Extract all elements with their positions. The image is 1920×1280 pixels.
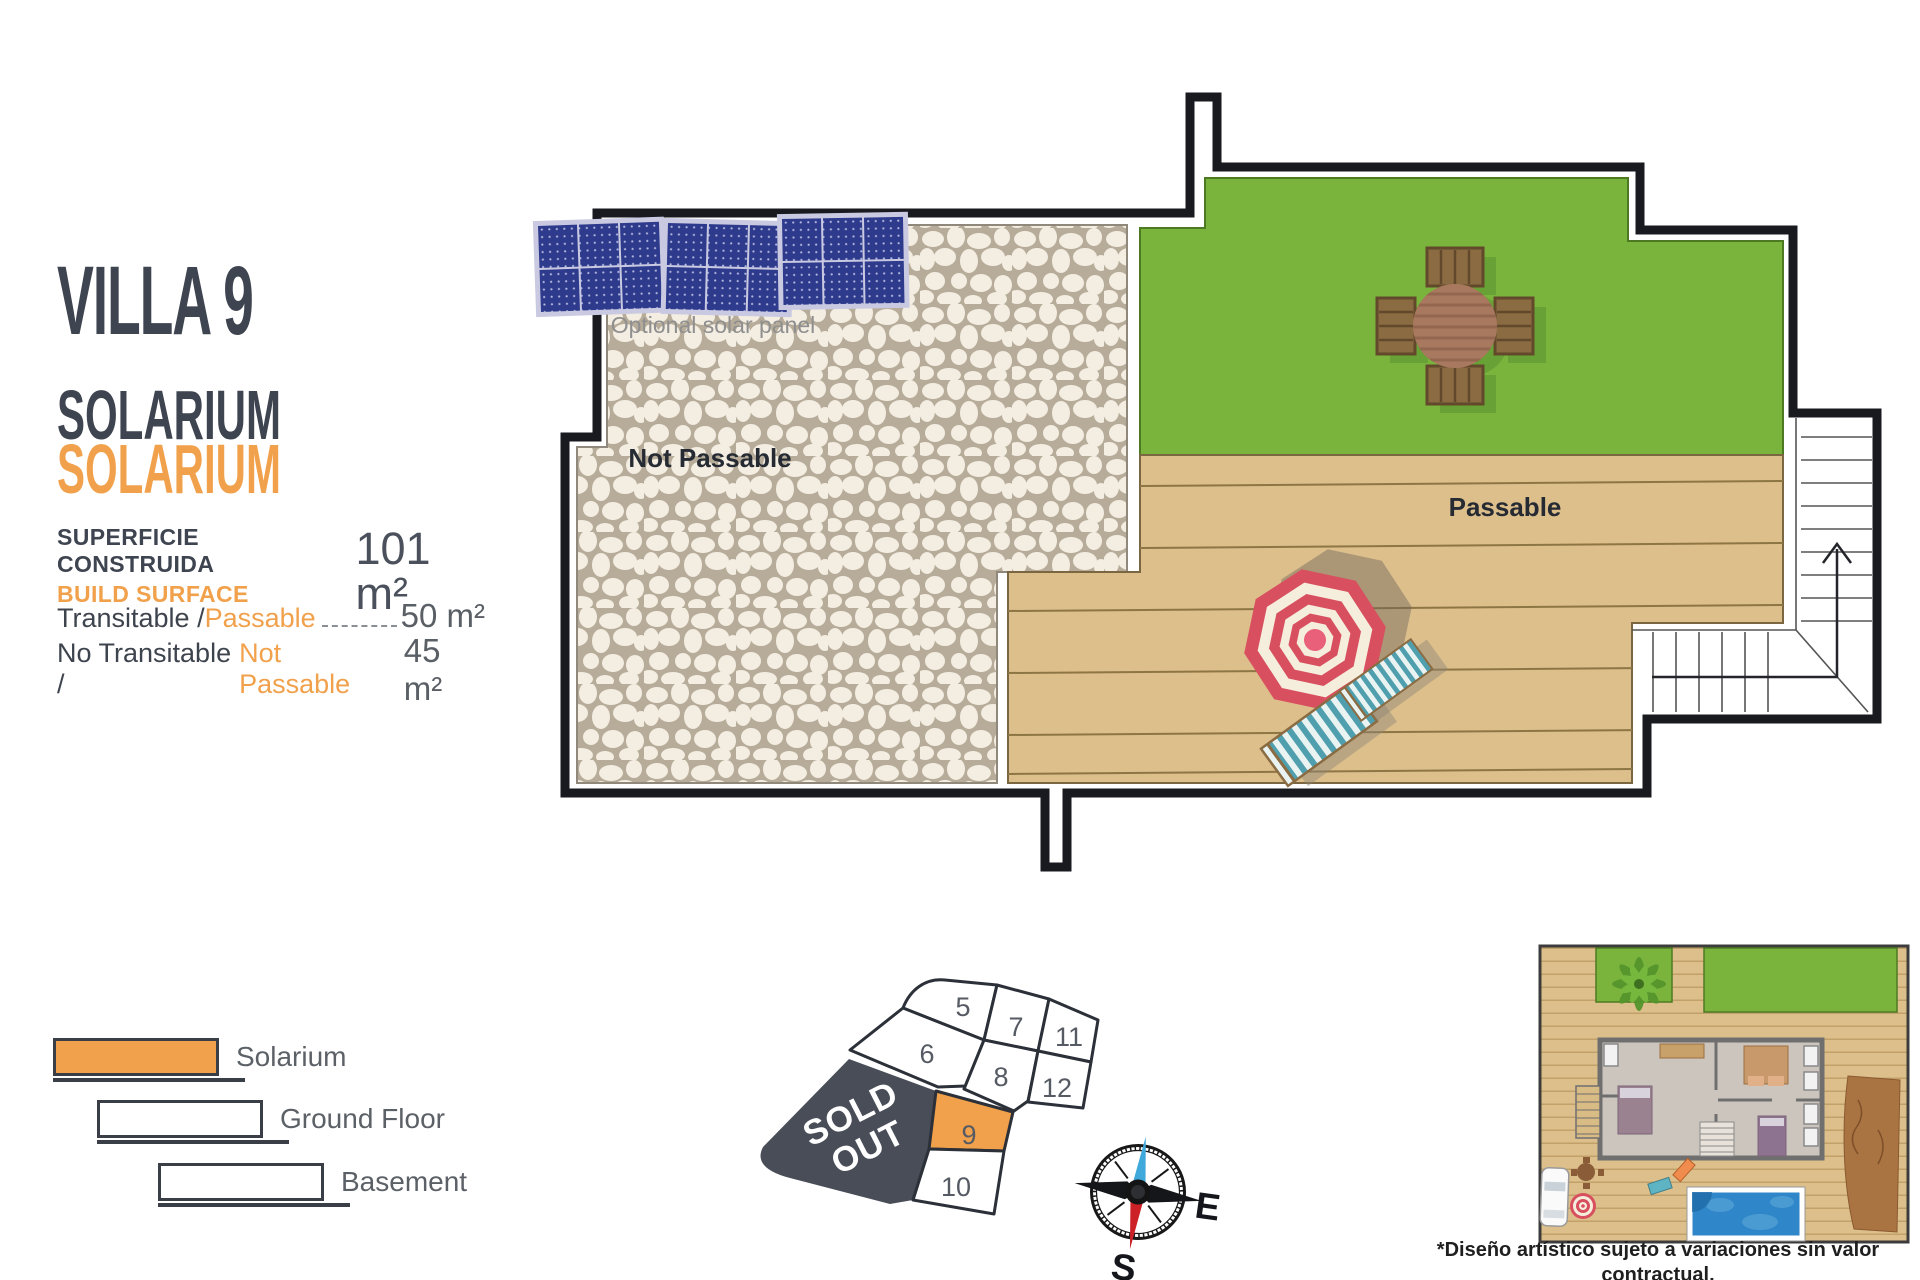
plot-label-8: 8 bbox=[993, 1062, 1008, 1092]
mini-bed bbox=[1744, 1046, 1788, 1086]
palm-tree bbox=[1612, 957, 1666, 1011]
mini-dirt-patch bbox=[1844, 1076, 1900, 1232]
plot-label-11: 11 bbox=[1055, 1022, 1083, 1052]
disclaimer-line1: *Diseño artístico sujeto a variaciones s… bbox=[1398, 1238, 1918, 1280]
plot-label-10: 10 bbox=[941, 1172, 971, 1202]
dining-chair bbox=[1427, 248, 1483, 286]
disclaimer: *Diseño artístico sujeto a variaciones s… bbox=[1398, 1238, 1918, 1280]
dining-chair bbox=[1377, 298, 1415, 354]
solar-panel bbox=[777, 212, 910, 310]
mini-site-plan bbox=[1540, 946, 1908, 1242]
solar-panels bbox=[533, 212, 910, 317]
mini-deck-stairs bbox=[1576, 1086, 1600, 1138]
solar-panel bbox=[661, 218, 794, 317]
compass-south-label: S bbox=[1109, 1246, 1139, 1280]
mini-closet bbox=[1660, 1044, 1704, 1058]
mini-parasol bbox=[1570, 1193, 1596, 1219]
plot-label-7: 7 bbox=[1008, 1012, 1023, 1042]
dining-chair bbox=[1427, 366, 1483, 404]
plot-label-12: 12 bbox=[1042, 1073, 1072, 1103]
dining-table bbox=[1413, 284, 1497, 368]
page-root: VILLA 9 SOLARIUM SOLARIUM SUPERFICIE CON… bbox=[0, 0, 1920, 1280]
mini-stairs bbox=[1700, 1122, 1734, 1156]
passable-label: Passable bbox=[1449, 492, 1562, 522]
mini-car bbox=[1540, 1168, 1569, 1227]
plot-map: 5 6 7 8 9 10 11 12 SOLD OUT bbox=[761, 980, 1098, 1214]
plot-label-5: 5 bbox=[955, 992, 970, 1022]
solar-panel bbox=[533, 217, 667, 318]
mini-pool bbox=[1687, 1187, 1805, 1241]
dining-chair bbox=[1495, 298, 1533, 354]
floor-plan-svg: Optional solar panel Not Passable Passab… bbox=[0, 0, 1920, 1280]
mini-bed bbox=[1758, 1116, 1786, 1156]
mini-lawn bbox=[1704, 948, 1897, 1012]
compass-east-label: E bbox=[1193, 1185, 1223, 1229]
plot-label-6: 6 bbox=[919, 1039, 934, 1069]
compass-rose-icon: E S bbox=[1067, 1128, 1223, 1280]
plot-label-9: 9 bbox=[961, 1120, 976, 1150]
solarium-plan: Optional solar panel Not Passable Passab… bbox=[533, 97, 1877, 867]
optional-solar-panel-label: Optional solar panel bbox=[611, 312, 816, 338]
not-passable-label: Not Passable bbox=[628, 443, 791, 473]
mini-bed bbox=[1618, 1086, 1652, 1134]
villa-footprint bbox=[1600, 1040, 1822, 1158]
